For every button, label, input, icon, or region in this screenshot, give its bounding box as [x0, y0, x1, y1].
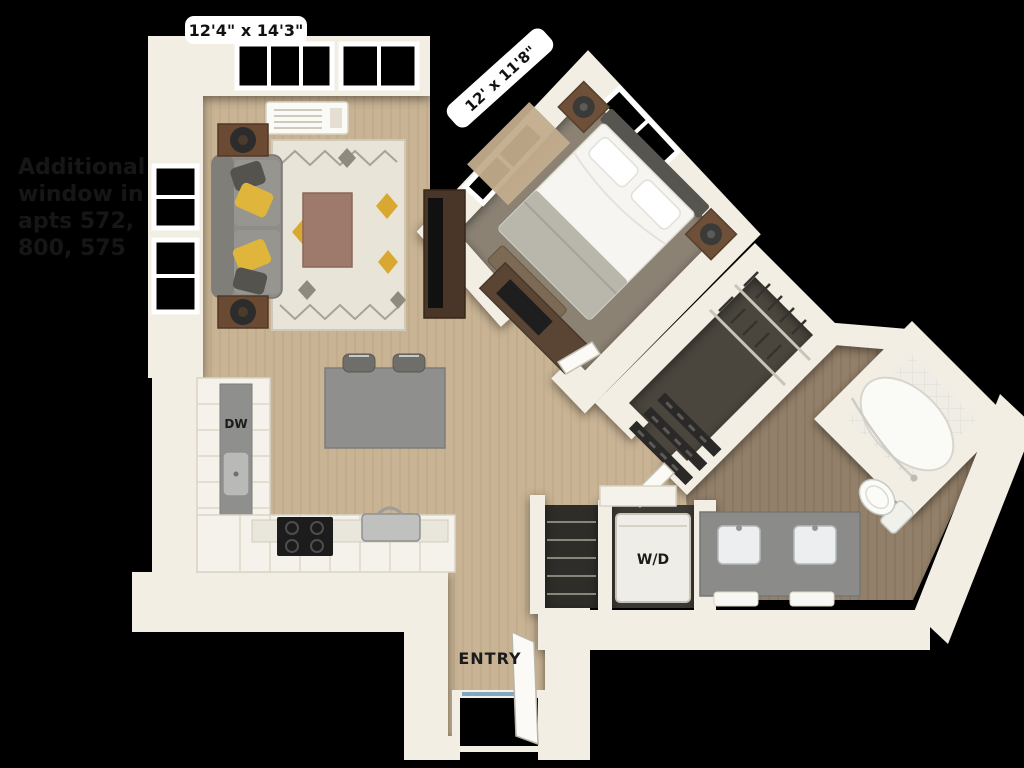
kitchen-counter-bottom: [197, 508, 455, 572]
ac-unit: [266, 102, 348, 134]
tv-console: [424, 190, 465, 318]
wall-entry-right: [545, 608, 590, 758]
wall-divider-hall: [530, 495, 545, 614]
wall-divider-linen-wd: [598, 500, 612, 614]
wall-entry-bottom-left: [404, 736, 460, 760]
vanity: [700, 512, 860, 606]
kitchen-island: [325, 354, 445, 448]
vanity-sink-1: [718, 526, 760, 564]
wall-kitchen-left: [152, 372, 197, 586]
wall-kitchen-bottom: [132, 572, 448, 632]
washer-dryer-unit: W/D: [616, 514, 690, 602]
island-stool-2: [393, 354, 425, 372]
kitchen-sink-left: [223, 452, 249, 496]
floor-plan-render: Additional window in apts 572, 800, 575: [0, 0, 1024, 768]
linen-closet-floor: [545, 505, 598, 608]
vanity-sink-2: [794, 526, 836, 564]
wall-bath-bottom: [538, 610, 930, 650]
note-line-1: Additional: [18, 155, 145, 180]
entry-area: ENTRY: [452, 632, 546, 752]
note-line-3: apts 572,: [18, 209, 134, 234]
window-living-left-2: [154, 240, 197, 312]
side-table-top: [218, 124, 268, 156]
coffee-table: [303, 193, 352, 267]
living-dimension-text: 12'4" x 14'3": [189, 21, 304, 40]
faint-annotation-note: Additional window in apts 572, 800, 575: [18, 155, 145, 261]
window-living-top-2: [341, 44, 417, 88]
vanity-towel-2: [790, 592, 834, 606]
wall-entry-left: [404, 608, 448, 758]
washer-dryer-label: W/D: [637, 552, 669, 568]
island-stool-1: [343, 354, 375, 372]
side-table-bottom: [218, 296, 268, 328]
vanity-towel-1: [714, 592, 758, 606]
window-living-top-1: [237, 44, 332, 88]
entry-label: ENTRY: [458, 649, 521, 668]
note-line-2: window in: [18, 182, 144, 207]
laundry-counter: [600, 486, 676, 506]
dishwasher-label: DW: [224, 417, 247, 431]
tv: [428, 198, 443, 308]
stove: [277, 517, 333, 556]
sofa: [212, 155, 282, 298]
floor-plan: Additional window in apts 572, 800, 575: [0, 0, 1024, 768]
note-line-4: 800, 575: [18, 236, 126, 261]
living-dimension-chip: 12'4" x 14'3": [185, 16, 307, 44]
window-living-left-1: [154, 166, 197, 228]
